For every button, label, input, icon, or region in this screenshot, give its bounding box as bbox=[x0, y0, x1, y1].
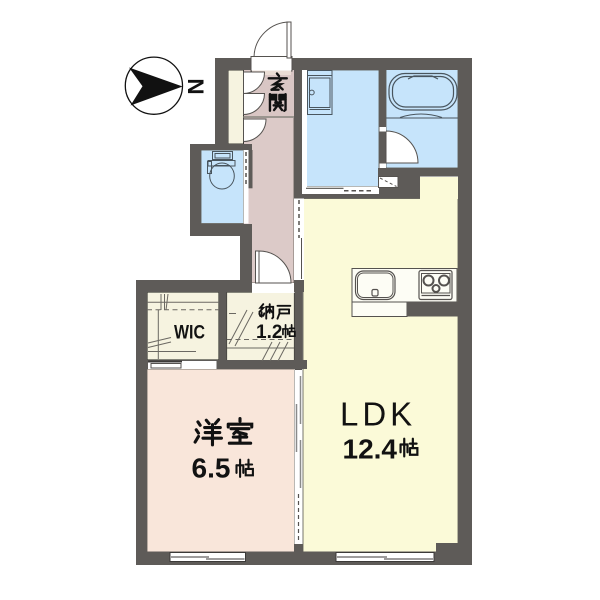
svg-text:LDK: LDK bbox=[340, 396, 416, 433]
svg-text:6.5: 6.5 bbox=[192, 453, 231, 484]
svg-text:1.2: 1.2 bbox=[256, 322, 282, 343]
svg-text:WIC: WIC bbox=[174, 323, 205, 344]
svg-text:12.4: 12.4 bbox=[343, 434, 398, 465]
svg-text:N: N bbox=[183, 78, 208, 94]
